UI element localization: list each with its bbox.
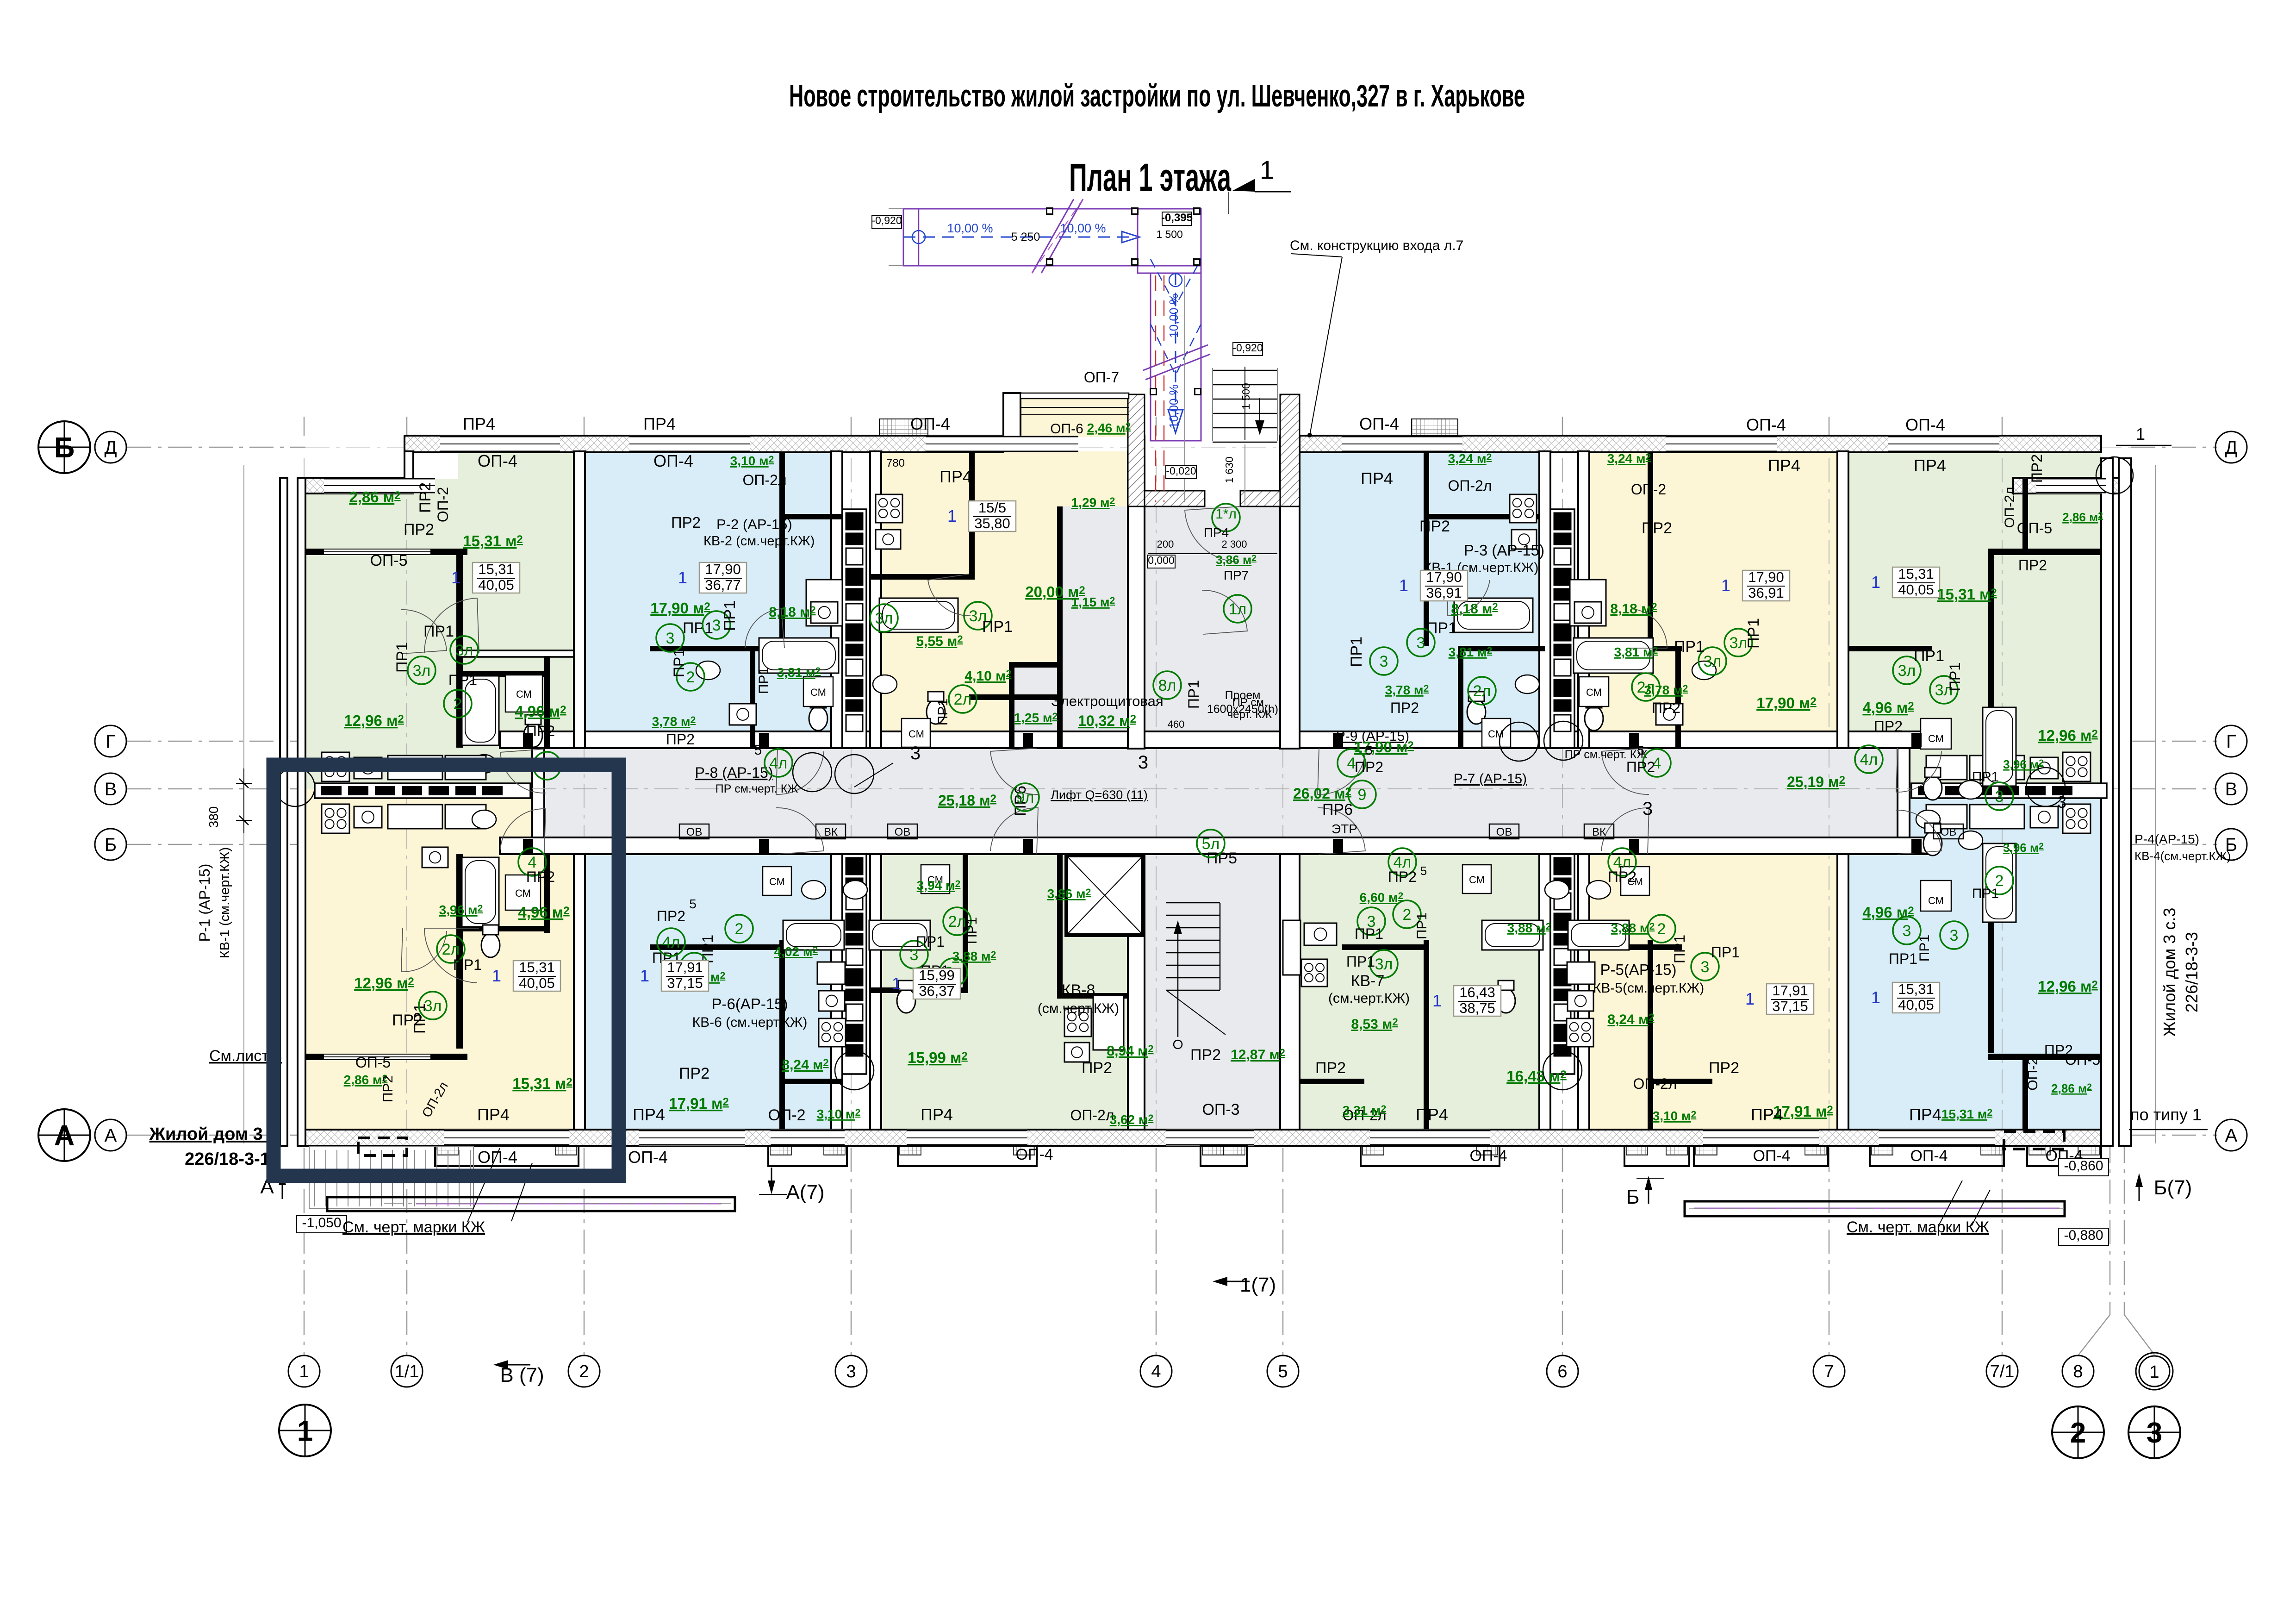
svg-text:5: 5 xyxy=(689,897,697,911)
svg-text:СМ: СМ xyxy=(516,688,532,700)
svg-text:ПР1: ПР1 xyxy=(1745,618,1762,649)
svg-text:3,10 м2: 3,10 м2 xyxy=(817,1107,861,1121)
svg-text:ПР см.черт. КЖ: ПР см.черт. КЖ xyxy=(716,782,798,795)
svg-text:12,96 м2: 12,96 м2 xyxy=(344,712,404,729)
svg-text:ПР1: ПР1 xyxy=(1889,950,1917,967)
svg-text:6: 6 xyxy=(1557,1362,1567,1381)
svg-text:ПР4: ПР4 xyxy=(633,1105,665,1124)
svg-text:КВ-2 (см.черт.КЖ): КВ-2 (см.черт.КЖ) xyxy=(703,534,815,549)
svg-text:25,18 м2: 25,18 м2 xyxy=(938,792,996,809)
svg-text:ОП-5: ОП-5 xyxy=(355,1054,391,1071)
svg-text:Р-2 (АР-15): Р-2 (АР-15) xyxy=(716,516,792,532)
svg-text:36,91: 36,91 xyxy=(1426,585,1462,601)
svg-text:780: 780 xyxy=(886,457,905,469)
svg-text:1: 1 xyxy=(1871,573,1880,592)
svg-text:Б: Б xyxy=(105,835,117,855)
svg-text:ПР4: ПР4 xyxy=(1204,525,1229,540)
svg-text:ОП-4: ОП-4 xyxy=(478,451,517,470)
svg-text:3л: 3л xyxy=(413,662,431,680)
svg-text:8,53 м2: 8,53 м2 xyxy=(1351,1016,1398,1032)
svg-text:3л: 3л xyxy=(455,642,473,659)
svg-text:Электрощитовая: Электрощитовая xyxy=(1051,693,1163,709)
svg-text:15,99: 15,99 xyxy=(919,967,955,983)
svg-text:КВ-8: КВ-8 xyxy=(1062,981,1095,999)
svg-text:ПР2: ПР2 xyxy=(1388,868,1417,885)
svg-text:ОП-2л: ОП-2л xyxy=(742,472,786,488)
svg-text:Р-7 (АР-15): Р-7 (АР-15) xyxy=(1454,771,1527,787)
svg-text:1: 1 xyxy=(1745,989,1755,1008)
svg-text:3: 3 xyxy=(1995,788,2004,806)
svg-text:Д: Д xyxy=(104,437,117,458)
svg-text:Жилой дом 3 с.3: Жилой дом 3 с.3 xyxy=(2160,908,2179,1037)
svg-text:ПР2: ПР2 xyxy=(2018,557,2047,574)
svg-text:226/18-3-3: 226/18-3-3 xyxy=(2182,932,2201,1012)
svg-text:1,15 м2: 1,15 м2 xyxy=(1071,595,1115,609)
svg-text:ПР1: ПР1 xyxy=(1674,638,1705,656)
svg-text:38,75: 38,75 xyxy=(1459,1000,1495,1016)
svg-text:15,31: 15,31 xyxy=(478,561,514,577)
svg-text:2л: 2л xyxy=(954,691,972,708)
svg-text:5: 5 xyxy=(1365,743,1373,757)
svg-text:ПР1: ПР1 xyxy=(1414,912,1430,939)
svg-text:ПР1: ПР1 xyxy=(1947,662,1963,691)
svg-text:0,000: 0,000 xyxy=(1148,554,1175,566)
svg-text:1: 1 xyxy=(2149,1362,2159,1382)
svg-text:ПР1: ПР1 xyxy=(1185,680,1202,709)
svg-text:3: 3 xyxy=(2057,793,2066,812)
svg-text:ПР4: ПР4 xyxy=(921,1105,953,1124)
svg-text:4,96 м2: 4,96 м2 xyxy=(1862,904,1914,921)
svg-text:ПР2: ПР2 xyxy=(1419,518,1450,535)
svg-text:ПР1: ПР1 xyxy=(916,933,945,950)
svg-text:-0,020: -0,020 xyxy=(1166,465,1196,477)
svg-text:ПР1: ПР1 xyxy=(1972,769,1999,785)
svg-text:3,86 м2: 3,86 м2 xyxy=(1216,553,1257,567)
svg-text:ПР2: ПР2 xyxy=(679,1065,709,1082)
svg-text:-1,050: -1,050 xyxy=(302,1215,341,1230)
svg-text:Жилой дом 3 с: Жилой дом 3 с xyxy=(149,1124,278,1144)
svg-text:ОП-2: ОП-2 xyxy=(2025,1057,2041,1091)
svg-text:Б(7): Б(7) xyxy=(2154,1176,2192,1199)
svg-text:Р-3 (АР-15): Р-3 (АР-15) xyxy=(1464,542,1544,559)
svg-text:ПР2: ПР2 xyxy=(1626,759,1655,775)
svg-text:ОП-2л: ОП-2л xyxy=(2002,487,2017,528)
svg-text:Б: Б xyxy=(1626,1186,1640,1208)
svg-text:ОП-5: ОП-5 xyxy=(2017,520,2052,537)
svg-text:ОП-4: ОП-4 xyxy=(1469,1147,1507,1165)
svg-text:ПР2: ПР2 xyxy=(526,868,555,885)
svg-text:А: А xyxy=(54,1120,75,1152)
svg-text:8: 8 xyxy=(2073,1362,2083,1381)
svg-text:1 630: 1 630 xyxy=(1223,456,1235,483)
svg-text:9: 9 xyxy=(1358,786,1367,804)
svg-text:2л: 2л xyxy=(442,941,460,958)
svg-text:ПР2: ПР2 xyxy=(666,731,695,748)
svg-text:8,18 м2: 8,18 м2 xyxy=(769,604,815,620)
svg-text:Б: Б xyxy=(54,432,75,464)
svg-text:ОП-4: ОП-4 xyxy=(1905,415,1945,434)
svg-text:Р-6(АР-15): Р-6(АР-15) xyxy=(711,995,788,1012)
svg-text:ПР1: ПР1 xyxy=(1917,935,1932,962)
svg-text:КВ-7: КВ-7 xyxy=(1351,972,1385,990)
svg-text:3л: 3л xyxy=(1898,662,1916,680)
svg-text:Р-1 (АР-15): Р-1 (АР-15) xyxy=(196,864,213,942)
svg-text:3,78 м2: 3,78 м2 xyxy=(1644,683,1688,697)
svg-text:СМ: СМ xyxy=(1586,687,1602,698)
svg-text:ПР1: ПР1 xyxy=(756,667,772,694)
svg-text:2: 2 xyxy=(454,695,462,713)
svg-text:ОП-2: ОП-2 xyxy=(768,1106,805,1124)
svg-text:2: 2 xyxy=(735,920,744,938)
svg-text:5: 5 xyxy=(1420,864,1427,878)
svg-text:ОП-4: ОП-4 xyxy=(478,1148,517,1167)
svg-text:1: 1 xyxy=(678,568,687,587)
svg-text:ОП-4: ОП-4 xyxy=(1359,414,1399,433)
svg-text:ПР2: ПР2 xyxy=(1642,519,1672,537)
svg-text:См. черт. марки КЖ: См. черт. марки КЖ xyxy=(1847,1218,1989,1236)
svg-text:1: 1 xyxy=(492,966,501,985)
svg-text:2: 2 xyxy=(1403,906,1412,924)
svg-text:37,15: 37,15 xyxy=(667,975,703,991)
svg-text:10,00 %: 10,00 % xyxy=(947,221,993,235)
svg-text:2: 2 xyxy=(686,668,695,686)
svg-text:2л: 2л xyxy=(948,913,966,931)
svg-text:5: 5 xyxy=(1637,743,1644,757)
svg-text:См. черт. марки КЖ: См. черт. марки КЖ xyxy=(342,1218,485,1236)
svg-text:ОВ: ОВ xyxy=(686,826,703,838)
svg-text:ОВ: ОВ xyxy=(1496,826,1512,838)
svg-text:5: 5 xyxy=(754,743,762,758)
svg-text:1: 1 xyxy=(640,966,649,985)
svg-text:9л: 9л xyxy=(1016,789,1034,806)
svg-text:ПР2: ПР2 xyxy=(526,723,555,739)
svg-text:СМ: СМ xyxy=(1928,733,1944,744)
svg-text:1: 1 xyxy=(947,506,957,525)
svg-text:10,00 %: 10,00 % xyxy=(1167,384,1181,428)
svg-text:Лифт Q=630 (11): Лифт Q=630 (11) xyxy=(1051,788,1148,802)
svg-text:СМ: СМ xyxy=(810,687,826,698)
svg-text:1: 1 xyxy=(1721,576,1730,595)
svg-text:17,90: 17,90 xyxy=(1426,569,1462,585)
svg-text:ОП-2л: ОП-2л xyxy=(1070,1107,1114,1124)
svg-text:-0,920: -0,920 xyxy=(871,214,902,226)
svg-text:ПР см.: ПР см. xyxy=(1232,696,1267,709)
svg-text:ВК: ВК xyxy=(1592,826,1606,838)
svg-text:40,05: 40,05 xyxy=(1898,581,1934,598)
svg-text:3л: 3л xyxy=(1704,653,1722,670)
svg-text:ПР2: ПР2 xyxy=(404,521,434,538)
svg-text:ПР2: ПР2 xyxy=(1390,700,1419,716)
svg-text:ПР1: ПР1 xyxy=(683,619,713,637)
svg-text:226/18-3-1: 226/18-3-1 xyxy=(185,1149,270,1169)
svg-text:4,96 м2: 4,96 м2 xyxy=(518,904,569,921)
svg-text:3,81 м2: 3,81 м2 xyxy=(1614,645,1658,659)
svg-text:ОВ: ОВ xyxy=(1941,826,1957,838)
svg-text:ПР2: ПР2 xyxy=(1874,718,1903,735)
svg-text:4л: 4л xyxy=(770,755,788,772)
svg-text:ПР2: ПР2 xyxy=(671,514,701,531)
svg-text:12,96 м2: 12,96 м2 xyxy=(2038,727,2098,744)
svg-text:-0,880: -0,880 xyxy=(2064,1228,2103,1243)
svg-text:3,86 м2: 3,86 м2 xyxy=(1047,887,1091,901)
svg-text:ОП-4: ОП-4 xyxy=(1015,1146,1053,1163)
svg-text:15,31: 15,31 xyxy=(1898,981,1934,997)
svg-text:ПР1: ПР1 xyxy=(1972,886,1999,901)
svg-text:3л: 3л xyxy=(424,997,442,1015)
svg-text:ОП-4: ОП-4 xyxy=(653,451,693,470)
svg-text:ПР2: ПР2 xyxy=(657,908,685,924)
svg-text:А: А xyxy=(2225,1125,2238,1146)
svg-text:15,31 м2: 15,31 м2 xyxy=(1941,1107,1992,1121)
svg-text:ПР7: ПР7 xyxy=(1224,568,1249,582)
svg-text:17,91: 17,91 xyxy=(1772,982,1808,999)
svg-text:Г: Г xyxy=(2226,731,2236,752)
svg-text:2: 2 xyxy=(579,1362,589,1381)
svg-text:2 300: 2 300 xyxy=(1221,538,1247,550)
svg-text:1*л: 1*л xyxy=(1215,506,1237,522)
svg-text:17,90 м2: 17,90 м2 xyxy=(1756,694,1817,712)
svg-text:-0,920: -0,920 xyxy=(1232,342,1263,354)
svg-text:1(7): 1(7) xyxy=(1240,1274,1276,1296)
svg-text:15,31: 15,31 xyxy=(519,959,555,975)
svg-text:Р-4(АР-15): Р-4(АР-15) xyxy=(2134,832,2199,846)
svg-text:1: 1 xyxy=(451,568,460,587)
svg-text:8,18 м2: 8,18 м2 xyxy=(1451,601,1498,617)
svg-text:ПР4: ПР4 xyxy=(477,1105,510,1124)
svg-text:ПР1: ПР1 xyxy=(1711,944,1740,961)
svg-text:ПР1: ПР1 xyxy=(721,600,739,631)
svg-text:5л: 5л xyxy=(1202,835,1220,853)
svg-text:10,00 %: 10,00 % xyxy=(1060,221,1106,235)
svg-text:Д: Д xyxy=(2225,437,2237,458)
svg-text:КВ-6 (см.черт.КЖ): КВ-6 (см.черт.КЖ) xyxy=(692,1015,808,1030)
svg-text:ПР4: ПР4 xyxy=(1909,1105,1941,1124)
svg-text:5 250: 5 250 xyxy=(1011,231,1040,244)
svg-text:40,05: 40,05 xyxy=(519,975,555,991)
svg-text:15,31 м2: 15,31 м2 xyxy=(463,532,523,550)
svg-text:26,02 м2: 26,02 м2 xyxy=(1293,785,1351,802)
svg-text:ПР4: ПР4 xyxy=(1768,456,1800,475)
svg-text:4,96 м2: 4,96 м2 xyxy=(1862,699,1914,716)
svg-text:ОП-4: ОП-4 xyxy=(1746,415,1786,434)
svg-text:15,31 м2: 15,31 м2 xyxy=(1937,586,1997,603)
svg-text:2: 2 xyxy=(1657,920,1666,938)
svg-text:17,91 м2: 17,91 м2 xyxy=(669,1095,729,1112)
svg-text:1: 1 xyxy=(299,1362,309,1381)
svg-text:3: 3 xyxy=(2147,1417,2162,1449)
svg-text:12,87 м2: 12,87 м2 xyxy=(1231,1047,1285,1062)
svg-text:3: 3 xyxy=(712,617,721,634)
svg-text:ПР1: ПР1 xyxy=(935,699,951,725)
svg-text:КВ-5(см.черт.КЖ): КВ-5(см.черт.КЖ) xyxy=(1593,981,1704,996)
svg-text:ОП-2л: ОП-2л xyxy=(1448,477,1492,494)
svg-text:17,91: 17,91 xyxy=(667,959,703,975)
svg-text:3л: 3л xyxy=(875,610,893,627)
svg-text:8,24 м2: 8,24 м2 xyxy=(782,1057,828,1073)
svg-text:3,10 м2: 3,10 м2 xyxy=(730,454,774,468)
svg-text:-0,860: -0,860 xyxy=(2064,1158,2103,1174)
svg-text:ПР4: ПР4 xyxy=(940,467,972,486)
svg-text:черт. КЖ: черт. КЖ xyxy=(1227,708,1272,721)
svg-text:10,00 %: 10,00 % xyxy=(1167,294,1181,337)
svg-text:36,77: 36,77 xyxy=(705,577,741,593)
svg-text:ПР2: ПР2 xyxy=(380,1075,396,1102)
svg-text:ПР4: ПР4 xyxy=(1361,469,1393,488)
svg-text:4,96 м2: 4,96 м2 xyxy=(515,703,566,720)
svg-text:ОП-4: ОП-4 xyxy=(910,414,950,433)
svg-text:СМ: СМ xyxy=(769,876,785,887)
svg-text:ПР1: ПР1 xyxy=(1346,953,1375,970)
svg-text:(см.черт.КЖ): (см.черт.КЖ) xyxy=(1328,991,1410,1006)
svg-text:ПР4: ПР4 xyxy=(1751,1105,1783,1124)
svg-text:16,43: 16,43 xyxy=(1459,984,1495,1000)
svg-text:380: 380 xyxy=(206,806,221,828)
svg-text:ПР1: ПР1 xyxy=(1671,935,1688,963)
svg-text:ОП-4: ОП-4 xyxy=(1910,1147,1948,1165)
svg-text:3: 3 xyxy=(1950,927,1959,944)
svg-text:ПР2: ПР2 xyxy=(1709,1059,1739,1077)
svg-text:Новое строительство жилой заст: Новое строительство жилой застройки по у… xyxy=(789,78,1525,113)
svg-text:ПР1: ПР1 xyxy=(448,672,477,688)
svg-text:(см.черт.КЖ): (см.черт.КЖ) xyxy=(1038,1001,1119,1016)
svg-text:3: 3 xyxy=(1380,653,1388,670)
svg-text:6,60 м2: 6,60 м2 xyxy=(1360,890,1404,905)
svg-text:2,46 м2: 2,46 м2 xyxy=(1087,421,1131,435)
svg-text:А(7): А(7) xyxy=(786,1181,824,1204)
svg-text:2л: 2л xyxy=(1473,682,1491,700)
svg-text:3: 3 xyxy=(1417,634,1425,652)
svg-text:3: 3 xyxy=(1138,752,1148,773)
svg-text:3: 3 xyxy=(1701,958,1710,976)
svg-text:3,94 м2: 3,94 м2 xyxy=(917,878,961,893)
svg-text:СМ: СМ xyxy=(1469,874,1485,886)
svg-text:ПР1: ПР1 xyxy=(453,956,482,973)
svg-text:3,96 м2: 3,96 м2 xyxy=(2003,841,2044,855)
svg-text:3,81 м2: 3,81 м2 xyxy=(1449,645,1493,659)
svg-text:СМ: СМ xyxy=(1928,895,1944,906)
svg-text:ОП-4: ОП-4 xyxy=(628,1148,668,1167)
svg-text:7: 7 xyxy=(1824,1362,1834,1381)
svg-text:ПР1: ПР1 xyxy=(1348,637,1365,667)
svg-text:3,10 м2: 3,10 м2 xyxy=(1653,1109,1697,1123)
svg-text:5,55 м2: 5,55 м2 xyxy=(916,633,963,649)
svg-text:СМ: СМ xyxy=(515,887,531,899)
svg-text:1: 1 xyxy=(1432,991,1442,1010)
svg-text:ПР2: ПР2 xyxy=(392,1012,423,1029)
svg-text:4: 4 xyxy=(1151,1362,1161,1381)
svg-text:ПР4: ПР4 xyxy=(463,414,495,433)
svg-text:Р-8 (АР-15): Р-8 (АР-15) xyxy=(695,764,773,781)
svg-text:ПР1: ПР1 xyxy=(982,618,1013,636)
svg-text:2,86 м2: 2,86 м2 xyxy=(349,488,400,506)
svg-text:3,88 м2: 3,88 м2 xyxy=(952,949,996,963)
svg-text:ОП-5: ОП-5 xyxy=(2065,1051,2100,1068)
svg-text:3,24 м2: 3,24 м2 xyxy=(1607,451,1651,466)
svg-text:ПР2: ПР2 xyxy=(1190,1046,1221,1064)
svg-text:1: 1 xyxy=(1399,576,1408,595)
svg-text:3,24 м2: 3,24 м2 xyxy=(1448,451,1492,466)
svg-text:1: 1 xyxy=(2136,425,2145,443)
svg-text:15,31 м2: 15,31 м2 xyxy=(512,1075,572,1092)
svg-text:460: 460 xyxy=(1168,718,1185,730)
svg-text:4,02 м2: 4,02 м2 xyxy=(774,944,818,959)
svg-text:17,90 м2: 17,90 м2 xyxy=(650,600,710,617)
svg-text:ОП-2: ОП-2 xyxy=(1631,481,1666,498)
svg-text:35,80: 35,80 xyxy=(974,515,1010,531)
svg-text:10,32 м2: 10,32 м2 xyxy=(1078,712,1136,729)
svg-text:1/1: 1/1 xyxy=(395,1362,419,1381)
svg-text:3: 3 xyxy=(666,630,675,647)
svg-text:3: 3 xyxy=(846,1362,856,1381)
svg-text:ПР4: ПР4 xyxy=(1914,456,1946,475)
svg-text:ПР1: ПР1 xyxy=(1426,619,1457,637)
svg-text:36,91: 36,91 xyxy=(1748,585,1784,601)
svg-text:3,96 м2: 3,96 м2 xyxy=(439,903,483,917)
svg-text:36,37: 36,37 xyxy=(919,983,955,999)
svg-text:40,05: 40,05 xyxy=(1898,997,1934,1013)
svg-text:ОП-4: ОП-4 xyxy=(1753,1147,1790,1165)
svg-text:КВ-4(см.черт.КЖ): КВ-4(см.черт.КЖ) xyxy=(2134,849,2231,863)
svg-text:8,18 м2: 8,18 м2 xyxy=(1610,601,1657,617)
svg-text:1: 1 xyxy=(892,974,901,993)
svg-text:3л: 3л xyxy=(1375,956,1393,973)
svg-text:4л: 4л xyxy=(1860,751,1878,768)
svg-text:3: 3 xyxy=(910,743,921,763)
svg-text:СМ: СМ xyxy=(908,728,924,740)
svg-text:-0,395: -0,395 xyxy=(1161,212,1193,224)
svg-text:ВК: ВК xyxy=(824,826,838,838)
svg-text:3,78 м2: 3,78 м2 xyxy=(652,714,696,729)
svg-text:16,43 м2: 16,43 м2 xyxy=(1506,1068,1567,1085)
svg-text:ПР2: ПР2 xyxy=(1652,700,1680,716)
svg-text:2,86 м2: 2,86 м2 xyxy=(2051,1081,2092,1095)
svg-text:3,88 м2: 3,88 м2 xyxy=(1507,921,1551,935)
svg-text:8л: 8л xyxy=(1158,677,1176,694)
svg-text:ЭТР: ЭТР xyxy=(1332,822,1357,836)
svg-text:План 1 этажа: План 1 этажа xyxy=(1069,156,1232,199)
svg-text:ПР2: ПР2 xyxy=(2028,454,2045,483)
svg-text:ПР4: ПР4 xyxy=(1416,1105,1448,1124)
svg-text:ПР1: ПР1 xyxy=(1355,925,1383,942)
svg-text:ПР2: ПР2 xyxy=(1355,759,1383,775)
svg-text:40,05: 40,05 xyxy=(478,577,514,593)
svg-text:2: 2 xyxy=(2070,1417,2086,1449)
svg-text:1: 1 xyxy=(1260,155,1274,184)
svg-text:ОП-7: ОП-7 xyxy=(1084,369,1119,386)
svg-text:ПР2: ПР2 xyxy=(417,482,434,513)
svg-text:ПР1: ПР1 xyxy=(423,623,454,640)
svg-text:КВ-1 (см.черт.КЖ): КВ-1 (см.черт.КЖ) xyxy=(218,847,232,958)
svg-text:1,29 м2: 1,29 м2 xyxy=(1071,495,1115,510)
svg-text:ОВ: ОВ xyxy=(895,826,911,838)
svg-text:1,25 м2: 1,25 м2 xyxy=(1014,711,1058,725)
svg-text:ОП-2л: ОП-2л xyxy=(1633,1075,1677,1092)
svg-text:Р-5(АР-15): Р-5(АР-15) xyxy=(1600,961,1676,978)
svg-text:ОП-2: ОП-2 xyxy=(435,487,451,522)
svg-text:8,24 м2: 8,24 м2 xyxy=(1607,1012,1654,1027)
svg-text:См. конструкцию входа л.7: См. конструкцию входа л.7 xyxy=(1290,238,1463,253)
svg-text:15,99 м2: 15,99 м2 xyxy=(908,1049,968,1066)
svg-text:1: 1 xyxy=(1871,988,1880,1007)
svg-text:1 500: 1 500 xyxy=(1240,383,1252,410)
svg-text:по типу 1: по типу 1 xyxy=(2130,1105,2202,1124)
svg-text:В: В xyxy=(2225,779,2238,800)
svg-text:3,31 м2: 3,31 м2 xyxy=(1343,1103,1387,1118)
svg-text:ОП-3: ОП-3 xyxy=(1202,1101,1239,1118)
svg-text:2,86 м2: 2,86 м2 xyxy=(2062,510,2103,524)
svg-text:37,15: 37,15 xyxy=(1772,998,1808,1014)
svg-text:12,96 м2: 12,96 м2 xyxy=(2038,978,2098,995)
